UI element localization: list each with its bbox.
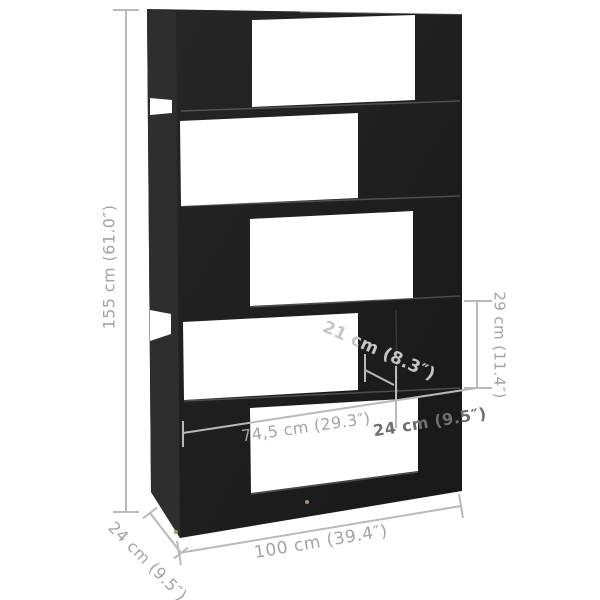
side-gap-tier-2 [150, 98, 172, 115]
depth-tick-top [143, 508, 157, 519]
bookshelf-illustration [147, 9, 462, 538]
depth-tick-bottom [174, 548, 188, 559]
foot-dot-middle [305, 500, 309, 504]
foot-dot-left [174, 530, 178, 534]
product-dimension-image: 155 cm (61.0″) 29 cm (11.4″) 21 cm (8.3″… [0, 0, 600, 600]
opening-height-dimension-label: 29 cm (11.4″) [491, 291, 509, 398]
total-width-dimension-label: 100 cm (39.4″) [253, 521, 389, 563]
height-dimension: 155 cm (61.0″) [100, 10, 140, 512]
opening-height-dimension: 29 cm (11.4″) [464, 291, 509, 398]
dimension-diagram-svg: 155 cm (61.0″) 29 cm (11.4″) 21 cm (8.3″… [0, 0, 600, 600]
bookshelf-left-side-face [147, 9, 180, 538]
opening-tier-1 [252, 15, 415, 107]
opening-tier-2 [180, 113, 358, 206]
height-dimension-label: 155 cm (61.0″) [100, 205, 119, 330]
opening-tier-3 [250, 211, 413, 306]
